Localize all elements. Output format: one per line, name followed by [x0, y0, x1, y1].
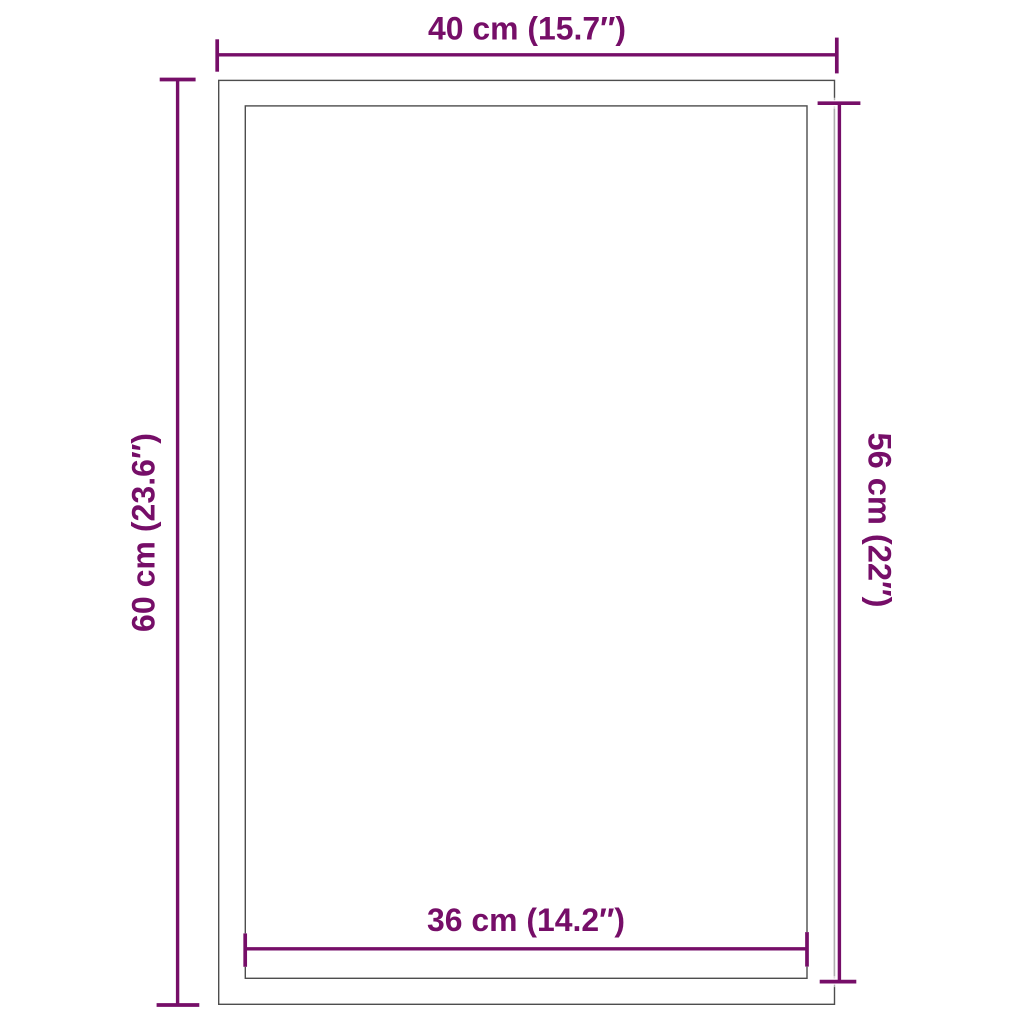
svg-text:40 cm (15.7″): 40 cm (15.7″) — [428, 11, 626, 47]
svg-text:36 cm (14.2″): 36 cm (14.2″) — [427, 902, 625, 938]
svg-text:56 cm (22″): 56 cm (22″) — [862, 433, 898, 608]
svg-text:60 cm (23.6″): 60 cm (23.6″) — [125, 433, 161, 632]
